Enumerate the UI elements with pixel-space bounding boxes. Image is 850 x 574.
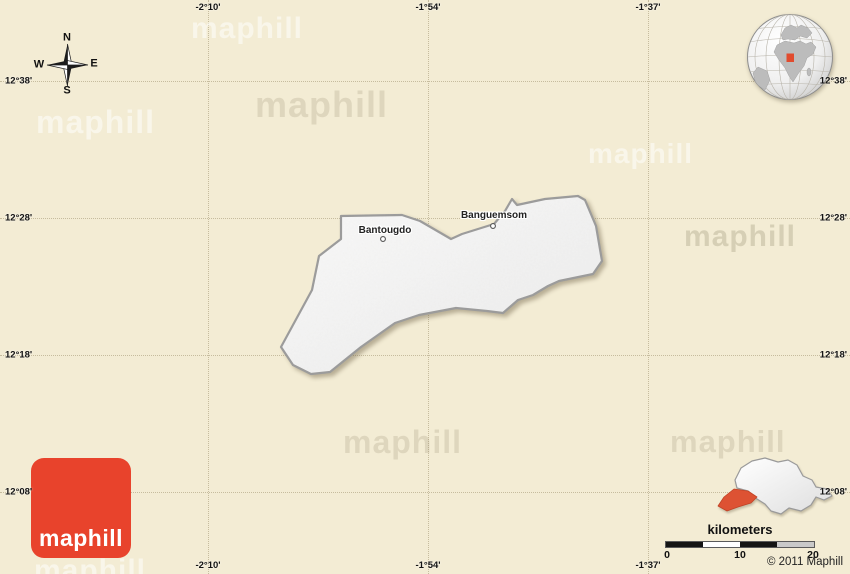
- region-shape: [281, 196, 602, 374]
- compass-north-label: N: [63, 33, 71, 44]
- meridian-label-bottom: -2°10': [195, 561, 220, 571]
- parallel-label-right: 12°08': [820, 487, 847, 497]
- parallel-label-right: 12°18': [820, 350, 847, 360]
- logo-wordmark: maphill: [39, 527, 123, 550]
- compass-east-label: E: [90, 59, 97, 70]
- scale-segment: [703, 542, 740, 547]
- copyright: © 2011 Maphill: [767, 557, 843, 569]
- scale-segment: [740, 542, 777, 547]
- parallel-label-right: 12°38': [820, 76, 847, 86]
- meridian-label-top: -1°37': [635, 3, 660, 13]
- compass-west-label: W: [34, 60, 44, 71]
- locator-marker: [787, 54, 795, 63]
- meridian-label-top: -2°10': [195, 3, 220, 13]
- parallel-label-left: 12°28': [5, 213, 32, 223]
- parallel-label-left: 12°18': [5, 350, 32, 360]
- place-label-bantougdo: Bantougdo: [359, 226, 412, 236]
- meridian-label-bottom: -1°37': [635, 561, 660, 571]
- scale-tick: 10: [734, 550, 746, 561]
- scale-title: kilometers: [665, 523, 815, 536]
- globe-locator: [744, 11, 836, 103]
- thumbnail-parent-shape: [735, 458, 832, 514]
- maphill-logo[interactable]: maphill: [31, 458, 131, 558]
- compass-south-label: S: [63, 86, 70, 97]
- scale-segment: [666, 542, 703, 547]
- place-marker: [381, 237, 386, 242]
- place-label-banguemsom: Banguemsom: [461, 211, 527, 221]
- parallel-label-right: 12°28': [820, 213, 847, 223]
- scale-segment: [777, 542, 814, 547]
- parallel-label-left: 12°08': [5, 487, 32, 497]
- compass-star: [47, 44, 88, 86]
- map-canvas: maphill maphill maphill maphill maphill …: [0, 0, 850, 574]
- meridian-label-top: -1°54': [415, 3, 440, 13]
- scale-bar: [665, 541, 815, 548]
- scale-tick: 0: [664, 550, 670, 561]
- place-marker: [491, 224, 496, 229]
- meridian-label-bottom: -1°54': [415, 561, 440, 571]
- parallel-label-left: 12°38': [5, 76, 32, 86]
